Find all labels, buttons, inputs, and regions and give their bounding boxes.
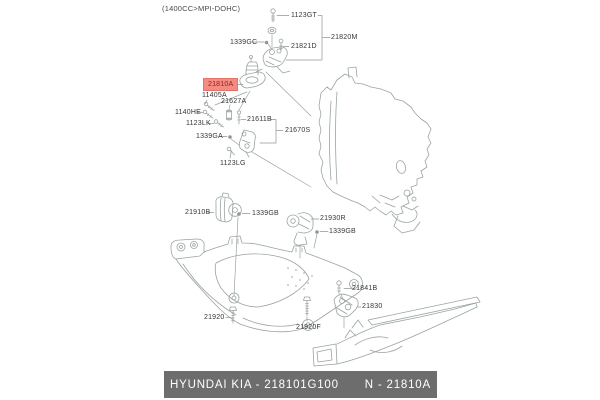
subframe-drawing (171, 236, 363, 332)
part-label-21820M: 21820M (331, 34, 358, 41)
part-label-1339GA: 1339GA (196, 133, 223, 140)
part-label-1123LG: 1123LG (220, 160, 246, 167)
part-label-1339GB-1: 1339GB (252, 210, 279, 217)
stud-21611B-icon (237, 111, 240, 124)
part-label-21821D: 21821D (291, 43, 317, 50)
transmission-mount-drawing (216, 193, 241, 222)
bolt-1123GT-icon (271, 9, 275, 22)
bolt-1140HE-icon (203, 110, 213, 118)
parts-diagram-page: (1400CC>MPI-DOHC) (0, 0, 600, 400)
part-label-1140HE: 1140HE (175, 109, 201, 116)
engine-mount-insulator-drawing (240, 56, 265, 89)
nut-1339GC-icon (265, 41, 269, 45)
nut-1339GB-2-icon (315, 230, 319, 234)
footer-bar: HYUNDAI KIA - 218101G100 N - 21810A (164, 371, 437, 398)
bolt-1123LK-icon (214, 120, 223, 127)
part-label-21920: 21920 (204, 314, 224, 321)
footer-brand-partnumber: HYUNDAI KIA - 218101G100 (170, 379, 339, 391)
diagram-line-art (0, 0, 600, 400)
bolt-21920F-icon (304, 297, 311, 316)
part-label-21910B: 21910B (185, 209, 210, 216)
part-label-21830: 21830 (362, 303, 382, 310)
part-label-21810A-highlighted: 21810A (203, 78, 238, 91)
engine-block-drawing (319, 67, 431, 233)
part-label-1123LK: 1123LK (186, 120, 211, 127)
part-label-21611B: 21611B (247, 116, 272, 123)
rear-roll-mount-drawing (287, 213, 313, 245)
side-member-drawing (313, 297, 480, 366)
roll-stopper-bracket-drawing (334, 294, 358, 317)
part-label-21627A: 21627A (221, 98, 246, 105)
part-label-1123GT: 1123GT (291, 12, 317, 19)
nut-1339GB-1-icon (237, 212, 241, 216)
part-label-1339GB-2: 1339GB (329, 228, 356, 235)
bolt-11405A-icon (204, 102, 214, 110)
part-label-21930R: 21930R (320, 215, 346, 222)
part-label-21841B: 21841B (352, 285, 377, 292)
footer-ref-number: N - 21810A (365, 379, 431, 391)
part-label-1339GC: 1339GC (230, 39, 257, 46)
bolt-21841B-icon (337, 281, 341, 294)
part-label-21670S: 21670S (285, 127, 310, 134)
part-label-21920F: 21920F (296, 324, 321, 331)
damper-21627A-icon (227, 110, 232, 120)
nut-1339GA-icon (228, 135, 232, 139)
washer-icon (268, 27, 276, 33)
